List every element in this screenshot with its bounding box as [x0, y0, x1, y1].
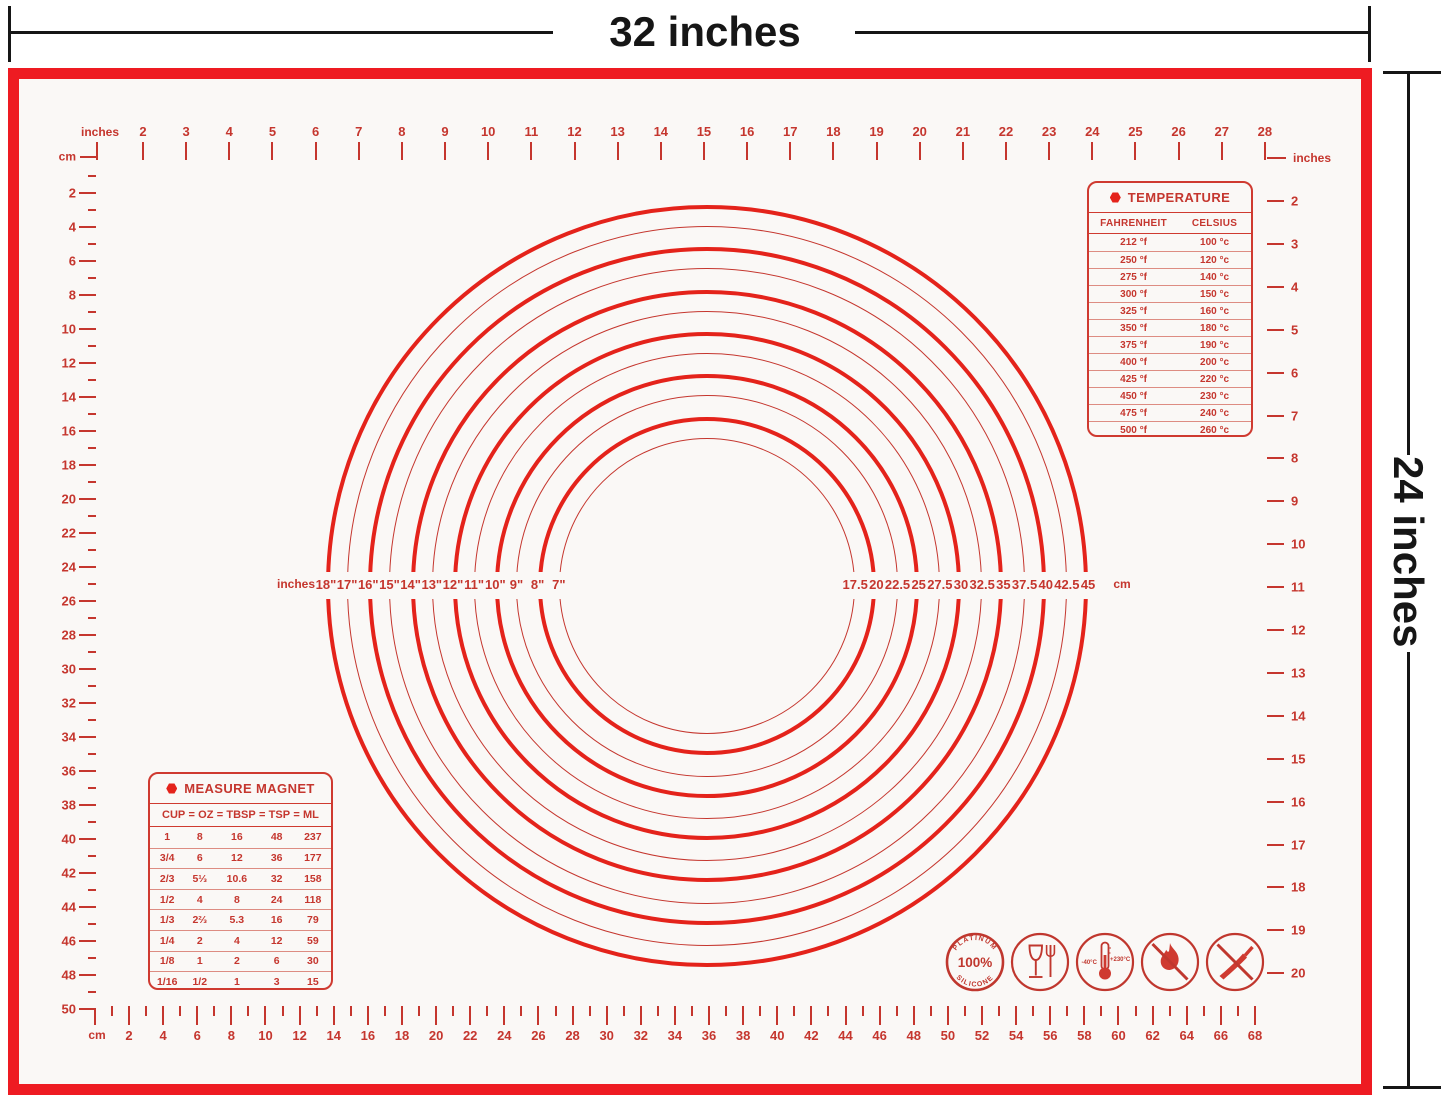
- temperature-cell: 250 °f: [1089, 255, 1178, 266]
- measure-cell: 158: [295, 873, 331, 885]
- temperature-cell: 200 °c: [1178, 357, 1251, 368]
- measure-table-title-row: MEASURE MAGNET: [150, 774, 331, 804]
- temperature-cell: 500 °f: [1089, 425, 1178, 436]
- measure-cell: 6: [184, 852, 215, 864]
- width-dimension-left-line: [8, 31, 553, 34]
- temperature-table-header: FAHRENHEIT CELSIUS: [1089, 213, 1251, 234]
- temperature-cell: 212 °f: [1089, 237, 1178, 248]
- measure-cell: 177: [295, 852, 331, 864]
- no-open-flame-icon: [1139, 931, 1201, 993]
- temperature-table-row: 500 °f260 °c: [1089, 421, 1251, 437]
- temperature-cell: 400 °f: [1089, 357, 1178, 368]
- measure-table-row: 1/4241259: [150, 930, 331, 951]
- measure-cell: 59: [295, 935, 331, 947]
- temp-range-max-label: +230°C: [1110, 957, 1131, 963]
- fahrenheit-column-header: FAHRENHEIT: [1089, 218, 1178, 229]
- badge-top-text: PLATINUM: [952, 935, 998, 952]
- width-dimension-label: 32 inches: [555, 8, 855, 56]
- temperature-table-row: 450 °f230 °c: [1089, 387, 1251, 404]
- height-dimension-bottom-cap: [1383, 1086, 1441, 1089]
- measure-cell: 2/3: [150, 873, 184, 885]
- measure-table-row: 1/161/21315: [150, 971, 331, 990]
- knife-blade-shape: [1220, 954, 1248, 980]
- temperature-table-body: 212 °f100 °c250 °f120 °c275 °f140 °c300 …: [1089, 234, 1251, 437]
- measure-cell: 24: [259, 894, 295, 906]
- measure-cell: 10.6: [215, 873, 258, 885]
- temperature-cell: 140 °c: [1178, 272, 1251, 283]
- measure-cell: 8: [184, 831, 215, 843]
- height-dimension-top-cap: [1383, 71, 1441, 74]
- measure-column-header: CUP: [162, 809, 185, 821]
- temperature-cell: 450 °f: [1089, 391, 1178, 402]
- temperature-cell: 475 °f: [1089, 408, 1178, 419]
- measure-cell: 12: [215, 852, 258, 864]
- temperature-cell: 375 °f: [1089, 340, 1178, 351]
- measure-table-row: 1/812630: [150, 951, 331, 972]
- measure-table-row: 181648237: [150, 827, 331, 848]
- thermometer-bulb: [1099, 968, 1111, 980]
- measure-cell: 8: [215, 894, 258, 906]
- width-dimension-right-cap: [1368, 6, 1371, 62]
- measure-column-header: OZ: [198, 809, 213, 821]
- temperature-cell: 260 °c: [1178, 425, 1251, 436]
- measure-column-header: ML: [303, 809, 319, 821]
- width-dimension-left-cap: [8, 6, 11, 62]
- measure-table-row: 3/461236177: [150, 848, 331, 869]
- measure-table-title: MEASURE MAGNET: [184, 781, 315, 796]
- measure-cell: 2: [215, 955, 258, 967]
- measure-cell: 48: [259, 831, 295, 843]
- temperature-cell: 275 °f: [1089, 272, 1178, 283]
- knife-handle: [1245, 947, 1253, 956]
- measure-cell: 1/3: [150, 914, 184, 926]
- measure-cell: 237: [295, 831, 331, 843]
- measure-cell: 2⅔: [184, 914, 215, 926]
- measure-cell: 6: [259, 955, 295, 967]
- svg-text:PLATINUM: PLATINUM: [952, 935, 998, 952]
- measure-table-row: 1/32⅔5.31679: [150, 909, 331, 930]
- measure-cell: 30: [295, 955, 331, 967]
- temperature-table-row: 400 °f200 °c: [1089, 353, 1251, 370]
- measure-cell: 5⅓: [184, 873, 215, 885]
- temperature-cell: 100 °c: [1178, 237, 1251, 248]
- measure-cell: 1: [215, 976, 258, 988]
- measure-cell: 1: [150, 831, 184, 843]
- measure-table-body: 1816482373/4612361772/35⅓10.6321581/2482…: [150, 827, 331, 990]
- certification-icons: PLATINUM 100% SILICONE -40°C +230°C: [944, 931, 1266, 993]
- equals-separator: =: [259, 809, 265, 821]
- measure-cell: 3/4: [150, 852, 184, 864]
- measure-cell: 5.3: [215, 914, 258, 926]
- temperature-table-row: 325 °f160 °c: [1089, 302, 1251, 319]
- measure-cell: 12: [259, 935, 295, 947]
- measure-cell: 3: [259, 976, 295, 988]
- temperature-table-title: TEMPERATURE: [1128, 190, 1230, 205]
- temperature-cell: 220 °c: [1178, 374, 1251, 385]
- measure-table-row: 2/35⅓10.632158: [150, 868, 331, 889]
- temperature-range-icon: -40°C +230°C: [1074, 931, 1136, 993]
- measure-cell: 1/2: [150, 894, 184, 906]
- temperature-table-title-row: TEMPERATURE: [1089, 183, 1251, 213]
- temperature-table: TEMPERATURE FAHRENHEIT CELSIUS 212 °f100…: [1087, 181, 1253, 437]
- celsius-column-header: CELSIUS: [1178, 218, 1251, 229]
- height-dimension-top-line: [1407, 71, 1410, 455]
- equals-separator: =: [217, 809, 223, 821]
- wine-glass-shape: [1030, 946, 1043, 961]
- measure-cell: 15: [295, 976, 331, 988]
- height-dimension-label: 24 inches: [1377, 452, 1439, 652]
- temperature-cell: 350 °f: [1089, 323, 1178, 334]
- measure-cell: 32: [259, 873, 295, 885]
- temp-range-min-label: -40°C: [1082, 960, 1098, 966]
- temperature-table-row: 275 °f140 °c: [1089, 268, 1251, 285]
- temperature-cell: 425 °f: [1089, 374, 1178, 385]
- temperature-table-row: 425 °f220 °c: [1089, 370, 1251, 387]
- measure-table-header: CUP=OZ=TBSP=TSP=ML: [150, 804, 331, 827]
- measure-table: MEASURE MAGNET CUP=OZ=TBSP=TSP=ML 181648…: [148, 772, 333, 990]
- temperature-cell: 230 °c: [1178, 391, 1251, 402]
- measure-cell: 1: [184, 955, 215, 967]
- measure-cell: 1/16: [150, 976, 184, 988]
- measure-cell: 79: [295, 914, 331, 926]
- measure-cell: 1/8: [150, 955, 184, 967]
- measure-column-header: TBSP: [226, 809, 255, 821]
- temperature-cell: 190 °c: [1178, 340, 1251, 351]
- height-dimension-bottom-line: [1407, 652, 1410, 1088]
- measure-cell: 4: [184, 894, 215, 906]
- measure-cell: 1/4: [150, 935, 184, 947]
- temperature-table-row: 475 °f240 °c: [1089, 404, 1251, 421]
- temperature-table-row: 300 °f150 °c: [1089, 285, 1251, 302]
- measure-cell: 1/2: [184, 976, 215, 988]
- platinum-silicone-badge-icon: PLATINUM 100% SILICONE: [944, 931, 1006, 993]
- measure-cell: 16: [215, 831, 258, 843]
- no-knife-icon: [1204, 931, 1266, 993]
- equals-separator: =: [293, 809, 299, 821]
- temperature-cell: 300 °f: [1089, 289, 1178, 300]
- measure-cell: 118: [295, 894, 331, 906]
- temperature-cell: 150 °c: [1178, 289, 1251, 300]
- temperature-cell: 120 °c: [1178, 255, 1251, 266]
- measure-column-header: TSP: [269, 809, 290, 821]
- measure-cell: 16: [259, 914, 295, 926]
- temperature-cell: 180 °c: [1178, 323, 1251, 334]
- measure-table-row: 1/24824118: [150, 889, 331, 910]
- temperature-table-row: 350 °f180 °c: [1089, 319, 1251, 336]
- temperature-cell: 160 °c: [1178, 306, 1251, 317]
- hexagon-bullet-icon: [166, 783, 177, 794]
- temperature-table-row: 375 °f190 °c: [1089, 336, 1251, 353]
- equals-separator: =: [188, 809, 194, 821]
- pastry-mat-product-image: 32 inches 24 inches 23456789101112131415…: [0, 0, 1445, 1095]
- width-dimension-right-line: [855, 31, 1371, 34]
- measure-cell: 2: [184, 935, 215, 947]
- temperature-table-row: 212 °f100 °c: [1089, 234, 1251, 251]
- measure-cell: 36: [259, 852, 295, 864]
- temperature-cell: 325 °f: [1089, 306, 1178, 317]
- measure-cell: 4: [215, 935, 258, 947]
- temperature-cell: 240 °c: [1178, 408, 1251, 419]
- hexagon-bullet-icon: [1110, 192, 1121, 203]
- food-safe-icon: [1009, 931, 1071, 993]
- badge-middle-text: 100%: [958, 955, 993, 970]
- temperature-table-row: 250 °f120 °c: [1089, 251, 1251, 268]
